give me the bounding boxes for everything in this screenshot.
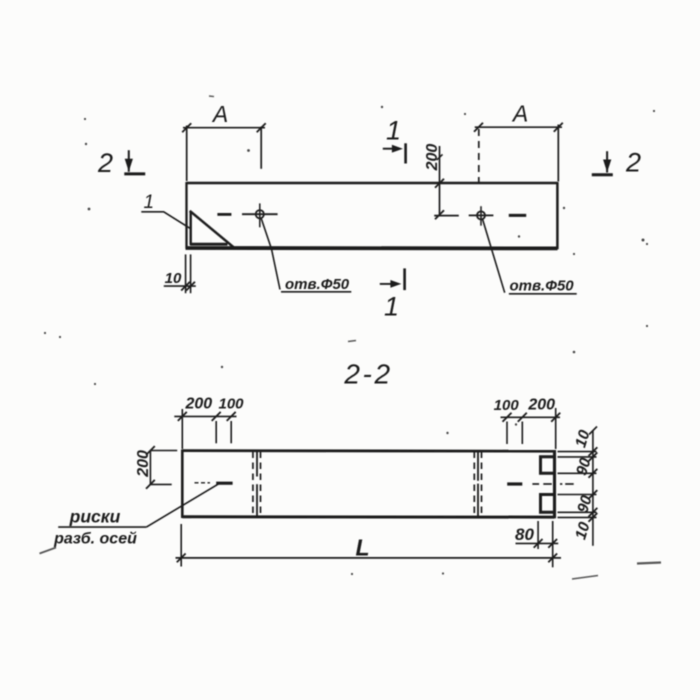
- svg-text:100: 100: [218, 396, 244, 413]
- svg-text:2: 2: [625, 148, 641, 178]
- svg-text:1: 1: [386, 116, 401, 146]
- svg-text:100: 100: [494, 397, 520, 414]
- svg-text:200: 200: [424, 144, 441, 172]
- svg-text:200: 200: [184, 396, 212, 413]
- svg-text:200: 200: [527, 397, 555, 414]
- svg-text:A: A: [211, 101, 228, 127]
- svg-text:80: 80: [515, 525, 534, 544]
- svg-text:200: 200: [135, 450, 152, 478]
- svg-text:A: A: [511, 101, 528, 127]
- svg-text:2: 2: [97, 148, 113, 178]
- svg-text:1: 1: [144, 192, 155, 213]
- svg-text:2-2: 2-2: [343, 359, 392, 390]
- svg-text:риски: риски: [69, 507, 121, 527]
- svg-text:разб. осей: разб. осей: [53, 531, 137, 548]
- svg-text:отв.Ф50: отв.Ф50: [510, 278, 575, 295]
- svg-text:1: 1: [384, 292, 399, 322]
- svg-text:10: 10: [165, 270, 182, 287]
- svg-text:отв.Ф50: отв.Ф50: [285, 276, 350, 293]
- svg-text:L: L: [355, 535, 369, 561]
